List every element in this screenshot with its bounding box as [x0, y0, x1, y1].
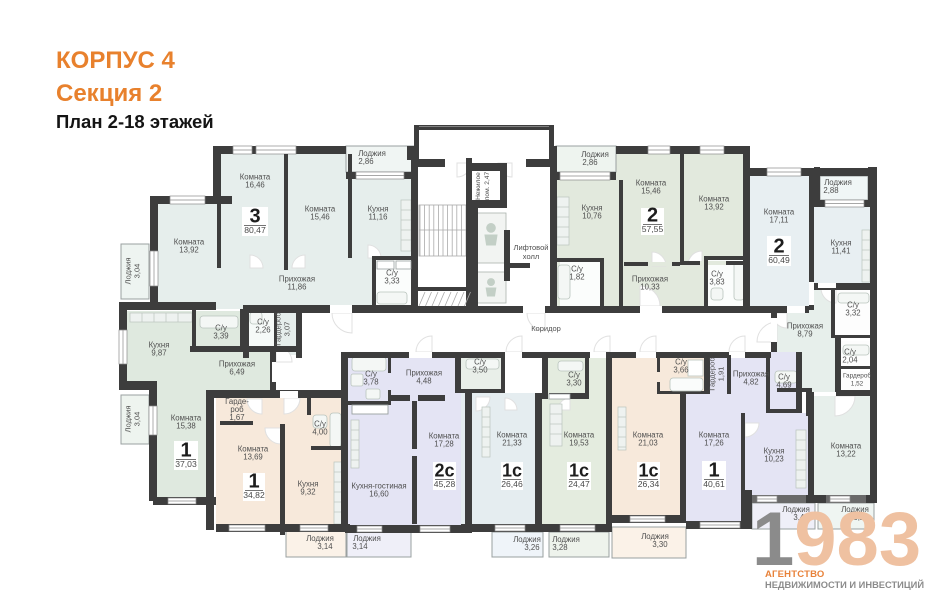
svg-text:15,46: 15,46	[310, 213, 330, 222]
svg-text:13,92: 13,92	[704, 203, 724, 212]
svg-text:3,07: 3,07	[283, 322, 292, 337]
svg-text:1,82: 1,82	[569, 273, 584, 282]
svg-text:Нежилое: Нежилое	[475, 172, 482, 200]
svg-text:4,82: 4,82	[743, 378, 758, 387]
svg-text:40,61: 40,61	[703, 479, 725, 489]
svg-text:19,53: 19,53	[569, 439, 589, 448]
svg-text:3,50: 3,50	[472, 366, 488, 375]
svg-text:26,34: 26,34	[638, 479, 660, 489]
svg-text:11,41: 11,41	[832, 247, 851, 256]
svg-text:3,83: 3,83	[709, 278, 724, 287]
svg-text:Лоджия: Лоджия	[124, 258, 133, 285]
svg-text:24,47: 24,47	[568, 479, 590, 489]
svg-text:3,30: 3,30	[652, 540, 668, 549]
svg-text:2,88: 2,88	[823, 186, 838, 195]
svg-text:4,48: 4,48	[416, 377, 431, 386]
svg-text:3,33: 3,33	[384, 277, 399, 286]
svg-text:10,23: 10,23	[764, 455, 784, 464]
svg-text:10,76: 10,76	[582, 212, 602, 221]
svg-text:11,86: 11,86	[288, 283, 307, 292]
svg-text:холл: холл	[523, 252, 539, 261]
svg-text:21,33: 21,33	[502, 439, 522, 448]
svg-text:60,49: 60,49	[768, 255, 790, 265]
svg-text:3,04: 3,04	[133, 264, 142, 279]
svg-text:1,67: 1,67	[229, 413, 244, 422]
svg-text:8,79: 8,79	[797, 330, 812, 339]
svg-text:80,47: 80,47	[244, 225, 266, 235]
svg-text:15,46: 15,46	[641, 187, 661, 196]
svg-text:1с: 1с	[502, 461, 522, 481]
svg-text:17,28: 17,28	[434, 440, 454, 449]
svg-text:9,87: 9,87	[151, 349, 166, 358]
svg-text:26,46: 26,46	[501, 479, 523, 489]
svg-text:13,22: 13,22	[836, 450, 856, 459]
svg-text:45,28: 45,28	[434, 479, 456, 489]
svg-text:3,28: 3,28	[552, 543, 567, 552]
svg-text:11,16: 11,16	[369, 213, 388, 222]
svg-text:3,26: 3,26	[524, 543, 539, 552]
svg-text:17,11: 17,11	[770, 216, 789, 225]
svg-text:17,26: 17,26	[704, 439, 724, 448]
svg-text:37,03: 37,03	[175, 459, 197, 469]
svg-text:34,82: 34,82	[243, 490, 265, 500]
svg-text:9,32: 9,32	[300, 488, 315, 497]
svg-text:2,26: 2,26	[255, 326, 270, 335]
svg-text:4,00: 4,00	[312, 428, 328, 437]
svg-text:10,33: 10,33	[640, 283, 660, 292]
svg-text:13,92: 13,92	[179, 246, 199, 255]
svg-text:3,14: 3,14	[317, 542, 333, 551]
svg-text:2с: 2с	[434, 461, 454, 481]
svg-text:1с: 1с	[638, 461, 658, 481]
svg-text:15,38: 15,38	[176, 422, 196, 431]
svg-text:Гардероб: Гардероб	[708, 357, 717, 391]
svg-text:пом. 2,47: пом. 2,47	[484, 172, 491, 201]
svg-text:3,66: 3,66	[673, 366, 688, 375]
svg-text:13,69: 13,69	[243, 453, 263, 462]
svg-text:Гардероб: Гардероб	[843, 372, 871, 380]
svg-text:Гардероб: Гардероб	[274, 312, 283, 346]
svg-text:3,04: 3,04	[133, 412, 142, 427]
svg-text:16,46: 16,46	[245, 181, 265, 190]
svg-text:57,55: 57,55	[642, 224, 664, 234]
svg-text:1,52: 1,52	[851, 381, 864, 388]
svg-text:6,49: 6,49	[229, 368, 244, 377]
svg-text:3,78: 3,78	[363, 378, 378, 387]
svg-text:3,32: 3,32	[845, 309, 860, 318]
svg-text:Коридор: Коридор	[531, 324, 561, 333]
svg-text:2,86: 2,86	[358, 157, 373, 166]
svg-text:Лифтовой: Лифтовой	[514, 243, 549, 252]
svg-text:1,91: 1,91	[717, 367, 726, 382]
svg-text:16,60: 16,60	[369, 490, 389, 499]
svg-text:Лоджия: Лоджия	[124, 406, 133, 433]
svg-text:3,14: 3,14	[352, 542, 368, 551]
svg-text:21,03: 21,03	[638, 439, 658, 448]
svg-text:4,69: 4,69	[776, 381, 791, 390]
svg-text:3,39: 3,39	[213, 332, 228, 341]
svg-text:2,04: 2,04	[842, 356, 858, 365]
svg-text:2,86: 2,86	[582, 158, 597, 167]
svg-text:3,30: 3,30	[566, 379, 582, 388]
svg-text:1с: 1с	[569, 461, 589, 481]
